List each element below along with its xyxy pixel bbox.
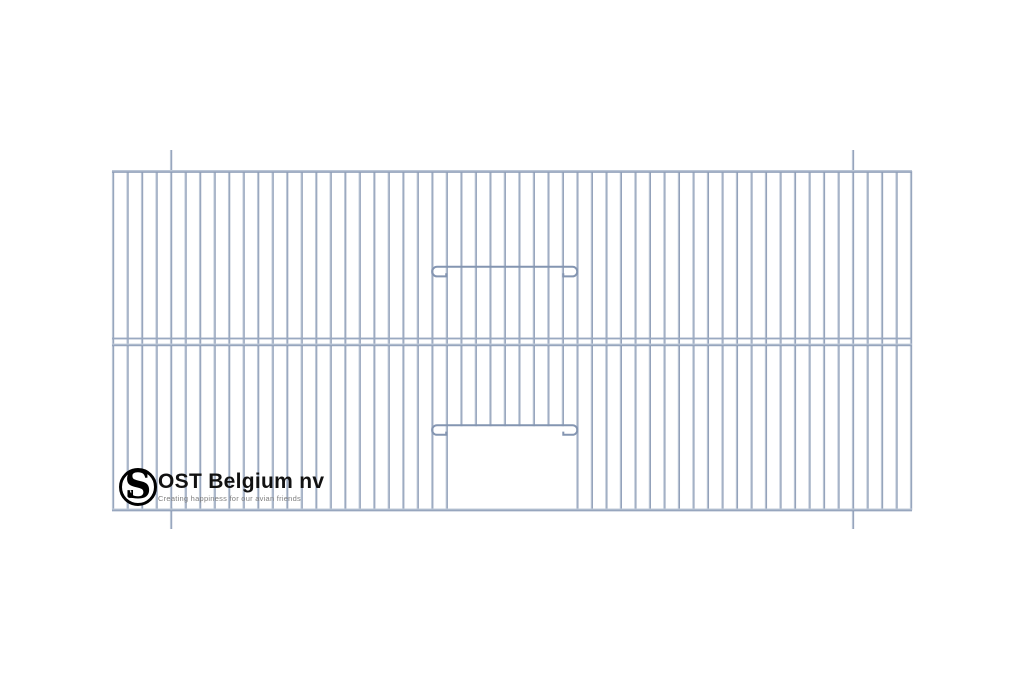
logo-monogram-small-letter: d [127, 490, 134, 501]
logo-company-name: OST Belgium nv [158, 471, 324, 493]
door-hook-wire [432, 425, 577, 435]
logo-text: OST Belgium nv Creating happiness for ou… [158, 471, 324, 503]
logo-tagline: Creating happiness for our avian friends [158, 494, 324, 503]
page-canvas: S d OST Belgium nv Creating happiness fo… [0, 0, 1024, 683]
horizontal-rails [112, 170, 912, 511]
vertical-bars [112, 171, 912, 510]
logo: S d OST Belgium nv Creating happiness fo… [119, 468, 324, 506]
cage-front-drawing [0, 0, 1024, 683]
logo-monogram-circle: S d [119, 468, 157, 506]
